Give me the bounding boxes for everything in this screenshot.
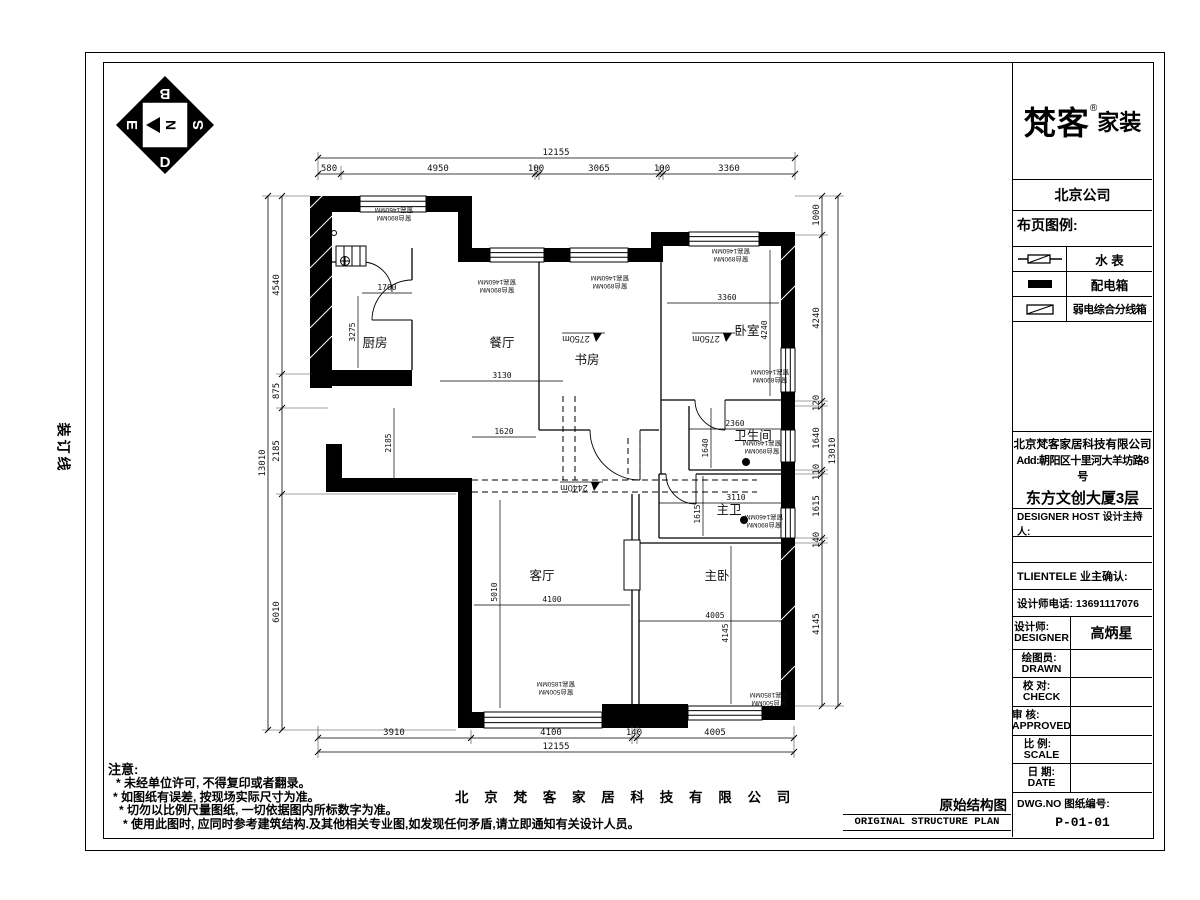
scale-label-en: SCALE xyxy=(1024,749,1060,761)
svg-text:窗台890MM: 窗台890MM xyxy=(593,282,628,291)
designer-label-en: DESIGNER xyxy=(1014,632,1069,644)
room-label-master-bath: 主卫 xyxy=(716,503,741,517)
dim-label: 4145 xyxy=(721,623,730,642)
dim-label: 1700 xyxy=(377,283,396,292)
svg-text:窗台500MM: 窗台500MM xyxy=(752,699,787,708)
drawing-title-cn: 原始结构图 xyxy=(843,797,1011,815)
designer-host-label: DESIGNER HOST 设计主持人: xyxy=(1013,509,1152,536)
dwg-no-row: DWG.NO 图纸编号: P-01-01 xyxy=(1013,793,1152,837)
dim-label: 875 xyxy=(272,383,282,399)
contact-company: 北京梵客家居科技有限公司 xyxy=(1013,436,1152,452)
brand-logo: 梵客®家装 xyxy=(1013,62,1152,180)
svg-text:窗高1850MM: 窗高1850MM xyxy=(750,691,788,700)
notes-title: 注意: xyxy=(108,763,748,777)
svg-text:2750m: 2750m xyxy=(692,334,720,344)
client-confirm-row: TLIENTELE 业主确认: xyxy=(1013,563,1152,590)
dim-label: 3360 xyxy=(717,293,736,302)
dim-label: 580 xyxy=(321,164,337,174)
dim-label: 6010 xyxy=(272,601,282,623)
check-row: 校 对:CHECK xyxy=(1013,678,1152,707)
room-label-dining: 餐厅 xyxy=(489,335,514,350)
svg-text:窗台890MM: 窗台890MM xyxy=(714,255,749,264)
designer-phone: 设计师电话: 13691117076 xyxy=(1013,590,1152,616)
drawing-title-en: ORIGINAL STRUCTURE PLAN xyxy=(843,815,1011,831)
dim-label: 4240 xyxy=(760,320,769,339)
dim-label: 120 xyxy=(812,395,822,411)
dwg-no-label: DWG.NO 图纸编号: xyxy=(1013,793,1152,811)
date-value xyxy=(1071,764,1152,792)
approved-row: 审 核:APPROVED xyxy=(1013,707,1152,736)
legend-item-distribution-box: 配电箱 xyxy=(1013,272,1152,297)
svg-text:窗高1460MM: 窗高1460MM xyxy=(712,247,750,256)
dim-label: 13010 xyxy=(258,449,268,476)
dim-label: 2185 xyxy=(272,440,282,462)
windows xyxy=(360,196,795,728)
window xyxy=(490,248,544,262)
room-label-living: 客厅 xyxy=(529,568,554,583)
window xyxy=(781,508,795,538)
dim-label: 4240 xyxy=(812,307,822,329)
dim-label: 3275 xyxy=(348,322,357,341)
window-note: 窗台500MM窗高1850MM xyxy=(537,680,575,697)
room-label-master-bedroom: 主卧 xyxy=(704,569,729,583)
approved-value xyxy=(1071,707,1152,735)
dim-label: 3360 xyxy=(718,164,740,174)
svg-text:窗高1460MM: 窗高1460MM xyxy=(751,368,789,377)
distribution-box-icon xyxy=(1027,279,1053,289)
drawn-value xyxy=(1071,650,1152,677)
window-note: 窗台890MM窗高1460MM xyxy=(712,247,750,264)
interior-walls xyxy=(332,246,781,706)
dim-label: 4100 xyxy=(540,728,562,738)
brand-logo-sub: 家装 xyxy=(1097,105,1141,137)
note-item: * 使用此图时, 应同时参考建筑结构.及其他相关专业图,如发现任何矛盾,请立即通… xyxy=(108,818,748,832)
window-note: 窗台890MM窗高1460MM xyxy=(751,368,789,385)
company-branch: 北京公司 xyxy=(1013,180,1152,210)
legend-title: 布页图例: xyxy=(1013,211,1152,246)
footer-company-name: 北 京 梵 客 家 居 科 技 有 限 公 司 xyxy=(455,786,796,806)
dim-label: 110 xyxy=(812,464,822,480)
dim-label: 1640 xyxy=(812,427,822,449)
dim-label: 100 xyxy=(654,164,670,174)
contact-address1: Add:朝阳区十里河大羊坊路8号 xyxy=(1013,452,1152,484)
window xyxy=(689,232,759,246)
approved-label-en: APPROVED xyxy=(1013,720,1071,732)
note-item: * 切勿以比例尺量图纸, 一切依据图内所标数字为准。 xyxy=(108,804,748,818)
legend-item-label: 水 表 xyxy=(1067,247,1152,271)
svg-text:窗台500MM: 窗台500MM xyxy=(539,688,574,697)
drawing-title-block: 原始结构图 ORIGINAL STRUCTURE PLAN xyxy=(843,797,1011,831)
walls xyxy=(310,196,795,728)
window-note: 窗台890MM窗高1460MM xyxy=(375,206,413,223)
door-arcs xyxy=(362,262,725,504)
scale-row: 比 例:SCALE xyxy=(1013,736,1152,764)
window-note: 窗台890MM窗高1460MM xyxy=(743,439,781,456)
date-row: 日 期:DATE xyxy=(1013,764,1152,793)
legend-item-label: 弱电综合分线箱 xyxy=(1067,297,1152,321)
designer-row: 设计师:DESIGNER 高炳星 xyxy=(1013,617,1152,650)
dim-label: 5010 xyxy=(490,582,499,601)
dim-label: 4145 xyxy=(812,613,822,635)
fixture-dot xyxy=(332,231,337,236)
window xyxy=(484,712,602,728)
legend-item-low-voltage-box: 弱电综合分线箱 xyxy=(1013,297,1152,322)
dim-label: 4005 xyxy=(705,611,724,620)
designer-host-value-row xyxy=(1013,537,1152,563)
window xyxy=(570,248,628,262)
svg-text:窗高1460MM: 窗高1460MM xyxy=(478,278,516,287)
dim-label: 3130 xyxy=(492,371,511,380)
svg-text:窗台890MM: 窗台890MM xyxy=(377,214,412,223)
check-value xyxy=(1071,678,1152,706)
svg-text:窗高1460MM: 窗高1460MM xyxy=(375,206,413,215)
window-note: 窗台890MM窗高1460MM xyxy=(478,278,516,295)
height-marker: 2440m xyxy=(560,482,603,493)
svg-text:窗台890MM: 窗台890MM xyxy=(753,376,788,385)
registered-mark-icon: ® xyxy=(1090,103,1097,114)
dim-label: 3065 xyxy=(588,164,610,174)
designer-phone-row: 设计师电话: 13691117076 xyxy=(1013,590,1152,617)
designer-host-row: DESIGNER HOST 设计主持人: xyxy=(1013,509,1152,537)
contact-address2: 东方文创大厦3层 xyxy=(1013,487,1152,508)
window-note: 窗台500MM窗高1850MM xyxy=(750,691,788,708)
dim-label: 1640 xyxy=(701,438,710,457)
floor-drain-icon xyxy=(743,459,750,466)
title-block: 梵客®家装 北京公司 布页图例: 水 表 xyxy=(1012,62,1152,837)
drawn-row: 绘图员:DRAWN xyxy=(1013,650,1152,678)
legend-title-row: 布页图例: xyxy=(1013,211,1152,247)
company-branch-row: 北京公司 xyxy=(1013,180,1152,211)
svg-text:窗台890MM: 窗台890MM xyxy=(747,521,782,530)
dim-label: 4540 xyxy=(272,274,282,296)
room-label-kitchen: 厨房 xyxy=(362,335,387,350)
dim-label: 140 xyxy=(812,532,822,548)
brand-logo-main: 梵客 xyxy=(1024,98,1090,144)
dim-label: 12155 xyxy=(542,742,569,752)
beam-dashed-lines xyxy=(472,396,757,492)
dim-label: 1620 xyxy=(494,427,513,436)
drawing-sheet: 装订线 B D E S N xyxy=(0,0,1200,900)
room-label-bedroom: 卧室 xyxy=(734,323,759,338)
date-label-en: DATE xyxy=(1028,777,1056,789)
dim-label: 3910 xyxy=(383,728,405,738)
dim-label: 100 xyxy=(528,164,544,174)
client-confirm-label: TLIENTELE 业主确认: xyxy=(1013,563,1152,589)
dim-label: 1615 xyxy=(693,504,702,523)
dwg-no-value: P-01-01 xyxy=(1013,815,1152,830)
dim-label: 2185 xyxy=(384,433,393,452)
svg-text:窗高1460MM: 窗高1460MM xyxy=(591,274,629,283)
dim-label: 4100 xyxy=(542,595,561,604)
designer-name: 高炳星 xyxy=(1071,617,1152,649)
drawn-label-en: DRAWN xyxy=(1022,663,1062,675)
svg-text:2750m: 2750m xyxy=(562,334,590,344)
svg-text:窗台890MM: 窗台890MM xyxy=(480,286,515,295)
window xyxy=(688,706,762,720)
legend-item-label: 配电箱 xyxy=(1067,272,1152,296)
dim-label: 4005 xyxy=(704,728,726,738)
svg-text:窗高1460MM: 窗高1460MM xyxy=(743,439,781,448)
dim-label: 1000 xyxy=(812,204,822,226)
svg-text:2440m: 2440m xyxy=(560,483,588,493)
dim-label: 3110 xyxy=(726,493,745,502)
sliding-door-panel xyxy=(624,540,640,590)
low-voltage-box-icon xyxy=(1026,304,1054,315)
scale-value xyxy=(1071,736,1152,763)
dim-label: 12155 xyxy=(542,148,569,158)
check-label-en: CHECK xyxy=(1023,691,1060,703)
dim-label: 1615 xyxy=(812,495,822,517)
dim-label: 4950 xyxy=(427,164,449,174)
room-labels: 厨房 餐厅 书房 卧室 卫生间 主卫 客厅 主卧 xyxy=(362,323,771,583)
contact-block: 北京梵客家居科技有限公司 Add:朝阳区十里河大羊坊路8号 东方文创大厦3层 T… xyxy=(1013,432,1152,509)
room-label-study: 书房 xyxy=(574,352,599,367)
svg-text:窗高1850MM: 窗高1850MM xyxy=(537,680,575,689)
dim-label: 2360 xyxy=(725,419,744,428)
window-note: 窗台890MM窗高1460MM xyxy=(745,513,783,530)
title-block-spacer xyxy=(1013,322,1152,432)
dim-label: 140 xyxy=(626,728,642,738)
legend-item-water-meter: 水 表 xyxy=(1013,247,1152,272)
svg-text:窗台890MM: 窗台890MM xyxy=(745,447,780,456)
svg-text:窗高1460MM: 窗高1460MM xyxy=(745,513,783,522)
window-note: 窗台890MM窗高1460MM xyxy=(591,274,629,291)
window xyxy=(781,430,795,462)
dim-label: 13010 xyxy=(828,437,838,464)
height-marker: 2750m xyxy=(692,333,735,344)
height-marker: 2750m xyxy=(562,333,605,344)
water-meter-icon xyxy=(1018,253,1062,265)
